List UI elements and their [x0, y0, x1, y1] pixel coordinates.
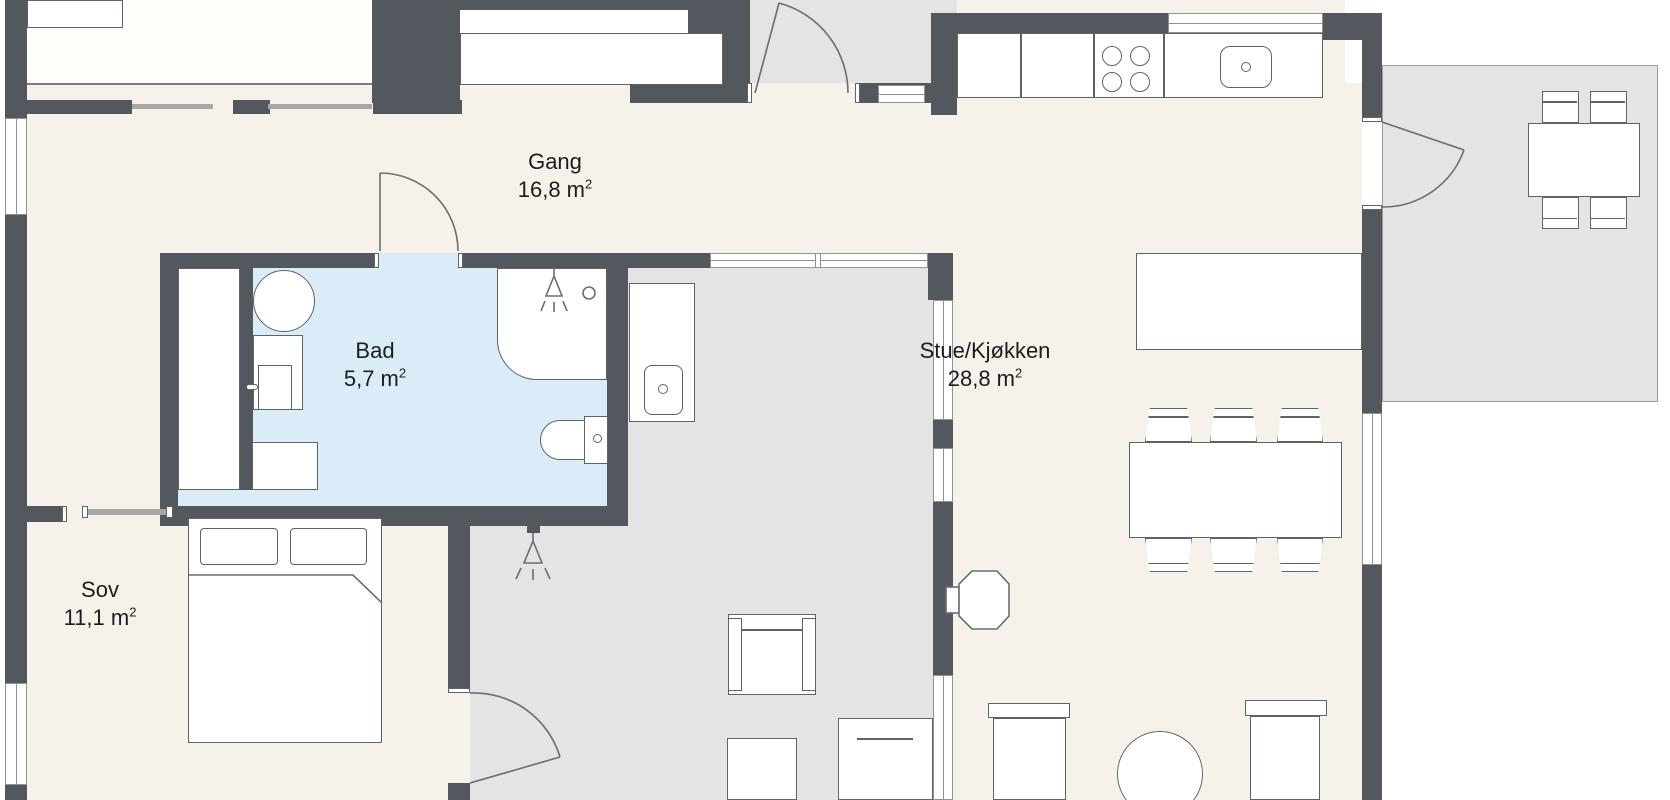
room-name: Stue/Kjøkken — [850, 337, 1120, 365]
armchair-back-line — [742, 629, 802, 631]
wall-segment — [931, 13, 1168, 33]
counter-divider — [1093, 34, 1095, 97]
counter-divider — [1163, 34, 1165, 97]
floor-plan: Gang 16,8 m2 Bad 5,7 m2 Sov 11,1 m2 Stue… — [0, 0, 1670, 800]
wall-segment — [933, 420, 953, 448]
room-area: 16,8 m2 — [455, 176, 655, 204]
sofa-chair — [993, 718, 1066, 800]
room-label-gang: Gang 16,8 m2 — [455, 148, 655, 204]
wardrobe — [460, 33, 723, 85]
room-name: Bad — [285, 337, 465, 365]
dining-table — [1129, 442, 1342, 538]
room-area: 11,1 m2 — [20, 604, 180, 632]
stove-burner-icon — [1130, 46, 1150, 66]
lounge-stool — [727, 738, 797, 800]
lounge-chair — [838, 718, 933, 800]
wardrobe — [27, 0, 123, 28]
bathroom-cabinet — [252, 442, 318, 490]
sofa-chair-back — [1245, 700, 1327, 716]
dining-chair — [1210, 538, 1257, 572]
wall-segment — [1362, 565, 1382, 800]
room-name: Sov — [20, 576, 180, 604]
wall-segment — [1362, 207, 1382, 413]
wall-segment — [448, 526, 470, 693]
room-label-sov: Sov 11,1 m2 — [20, 576, 180, 632]
sofa-chair — [1250, 716, 1320, 800]
wall-segment — [448, 783, 470, 800]
door-jamb — [1362, 117, 1382, 122]
wall-segment — [460, 0, 688, 10]
door-jamb — [747, 83, 752, 103]
wall-segment — [372, 0, 460, 103]
shower — [497, 268, 607, 380]
dining-chair — [1145, 408, 1192, 442]
wall-segment — [160, 268, 178, 526]
wall-segment — [27, 506, 64, 522]
window — [878, 85, 925, 103]
wall-segment — [27, 100, 132, 114]
dining-chair — [1210, 408, 1257, 442]
window — [933, 675, 953, 800]
faucet-icon — [658, 384, 668, 394]
stove-burner-icon — [1102, 46, 1122, 66]
sofa-chair-back — [988, 703, 1070, 718]
terrace-chair — [1542, 197, 1579, 229]
counter-divider — [1020, 34, 1022, 97]
kitchen-island — [1136, 253, 1362, 350]
wall-segment — [607, 268, 628, 526]
window — [1168, 13, 1323, 33]
bathroom-cabinet — [178, 268, 240, 490]
sliding-door-track — [132, 104, 213, 109]
floor-entry-porch — [750, 0, 957, 83]
wall-segment — [462, 253, 710, 268]
door-jamb — [855, 83, 860, 103]
sliding-door-panel — [86, 509, 168, 515]
wall-segment — [933, 502, 953, 675]
dining-chair — [1145, 538, 1192, 572]
room-area: 28,8 m2 — [850, 365, 1120, 393]
wall-segment — [160, 253, 377, 268]
room-label-bad: Bad 5,7 m2 — [285, 337, 465, 393]
wall-segment — [1362, 40, 1382, 122]
door-jamb — [166, 506, 173, 518]
pillow — [200, 528, 278, 565]
sliding-door-track — [268, 104, 372, 109]
door-jamb — [82, 506, 88, 518]
dining-chair — [1277, 408, 1323, 442]
door-jamb — [62, 506, 67, 522]
armchair-armrest — [728, 618, 742, 691]
wall-segment — [928, 253, 953, 300]
window — [933, 448, 953, 502]
floor-atrium-lower — [470, 526, 628, 800]
wall-segment — [373, 100, 462, 114]
pillow — [290, 528, 367, 565]
door-jamb — [448, 688, 470, 693]
washing-machine — [253, 270, 315, 332]
wall-segment — [233, 100, 270, 114]
terrace-chair — [1590, 91, 1627, 123]
stove-burner-icon — [1102, 72, 1122, 92]
room-area: 5,7 m2 — [285, 365, 465, 393]
toilet-bowl — [540, 420, 586, 460]
vanity-handle — [246, 384, 258, 390]
door-jamb — [1362, 205, 1382, 210]
wall-segment — [630, 85, 750, 103]
room-name: Gang — [455, 148, 655, 176]
window — [710, 253, 928, 268]
window — [1362, 413, 1382, 565]
door-jamb — [458, 253, 463, 268]
stove-burner-icon — [1130, 72, 1150, 92]
toilet-button — [593, 434, 602, 443]
terrace-table — [1528, 123, 1640, 197]
armchair-armrest — [802, 618, 816, 691]
door-jamb — [374, 253, 379, 268]
room-label-stue-kjokken: Stue/Kjøkken 28,8 m2 — [850, 337, 1120, 393]
window — [5, 118, 27, 215]
terrace-chair — [1542, 91, 1579, 123]
terrace-chair — [1590, 197, 1627, 229]
wall-segment — [1323, 13, 1382, 40]
dining-chair — [1277, 538, 1323, 572]
window — [5, 683, 27, 785]
faucet-icon — [1241, 62, 1251, 72]
